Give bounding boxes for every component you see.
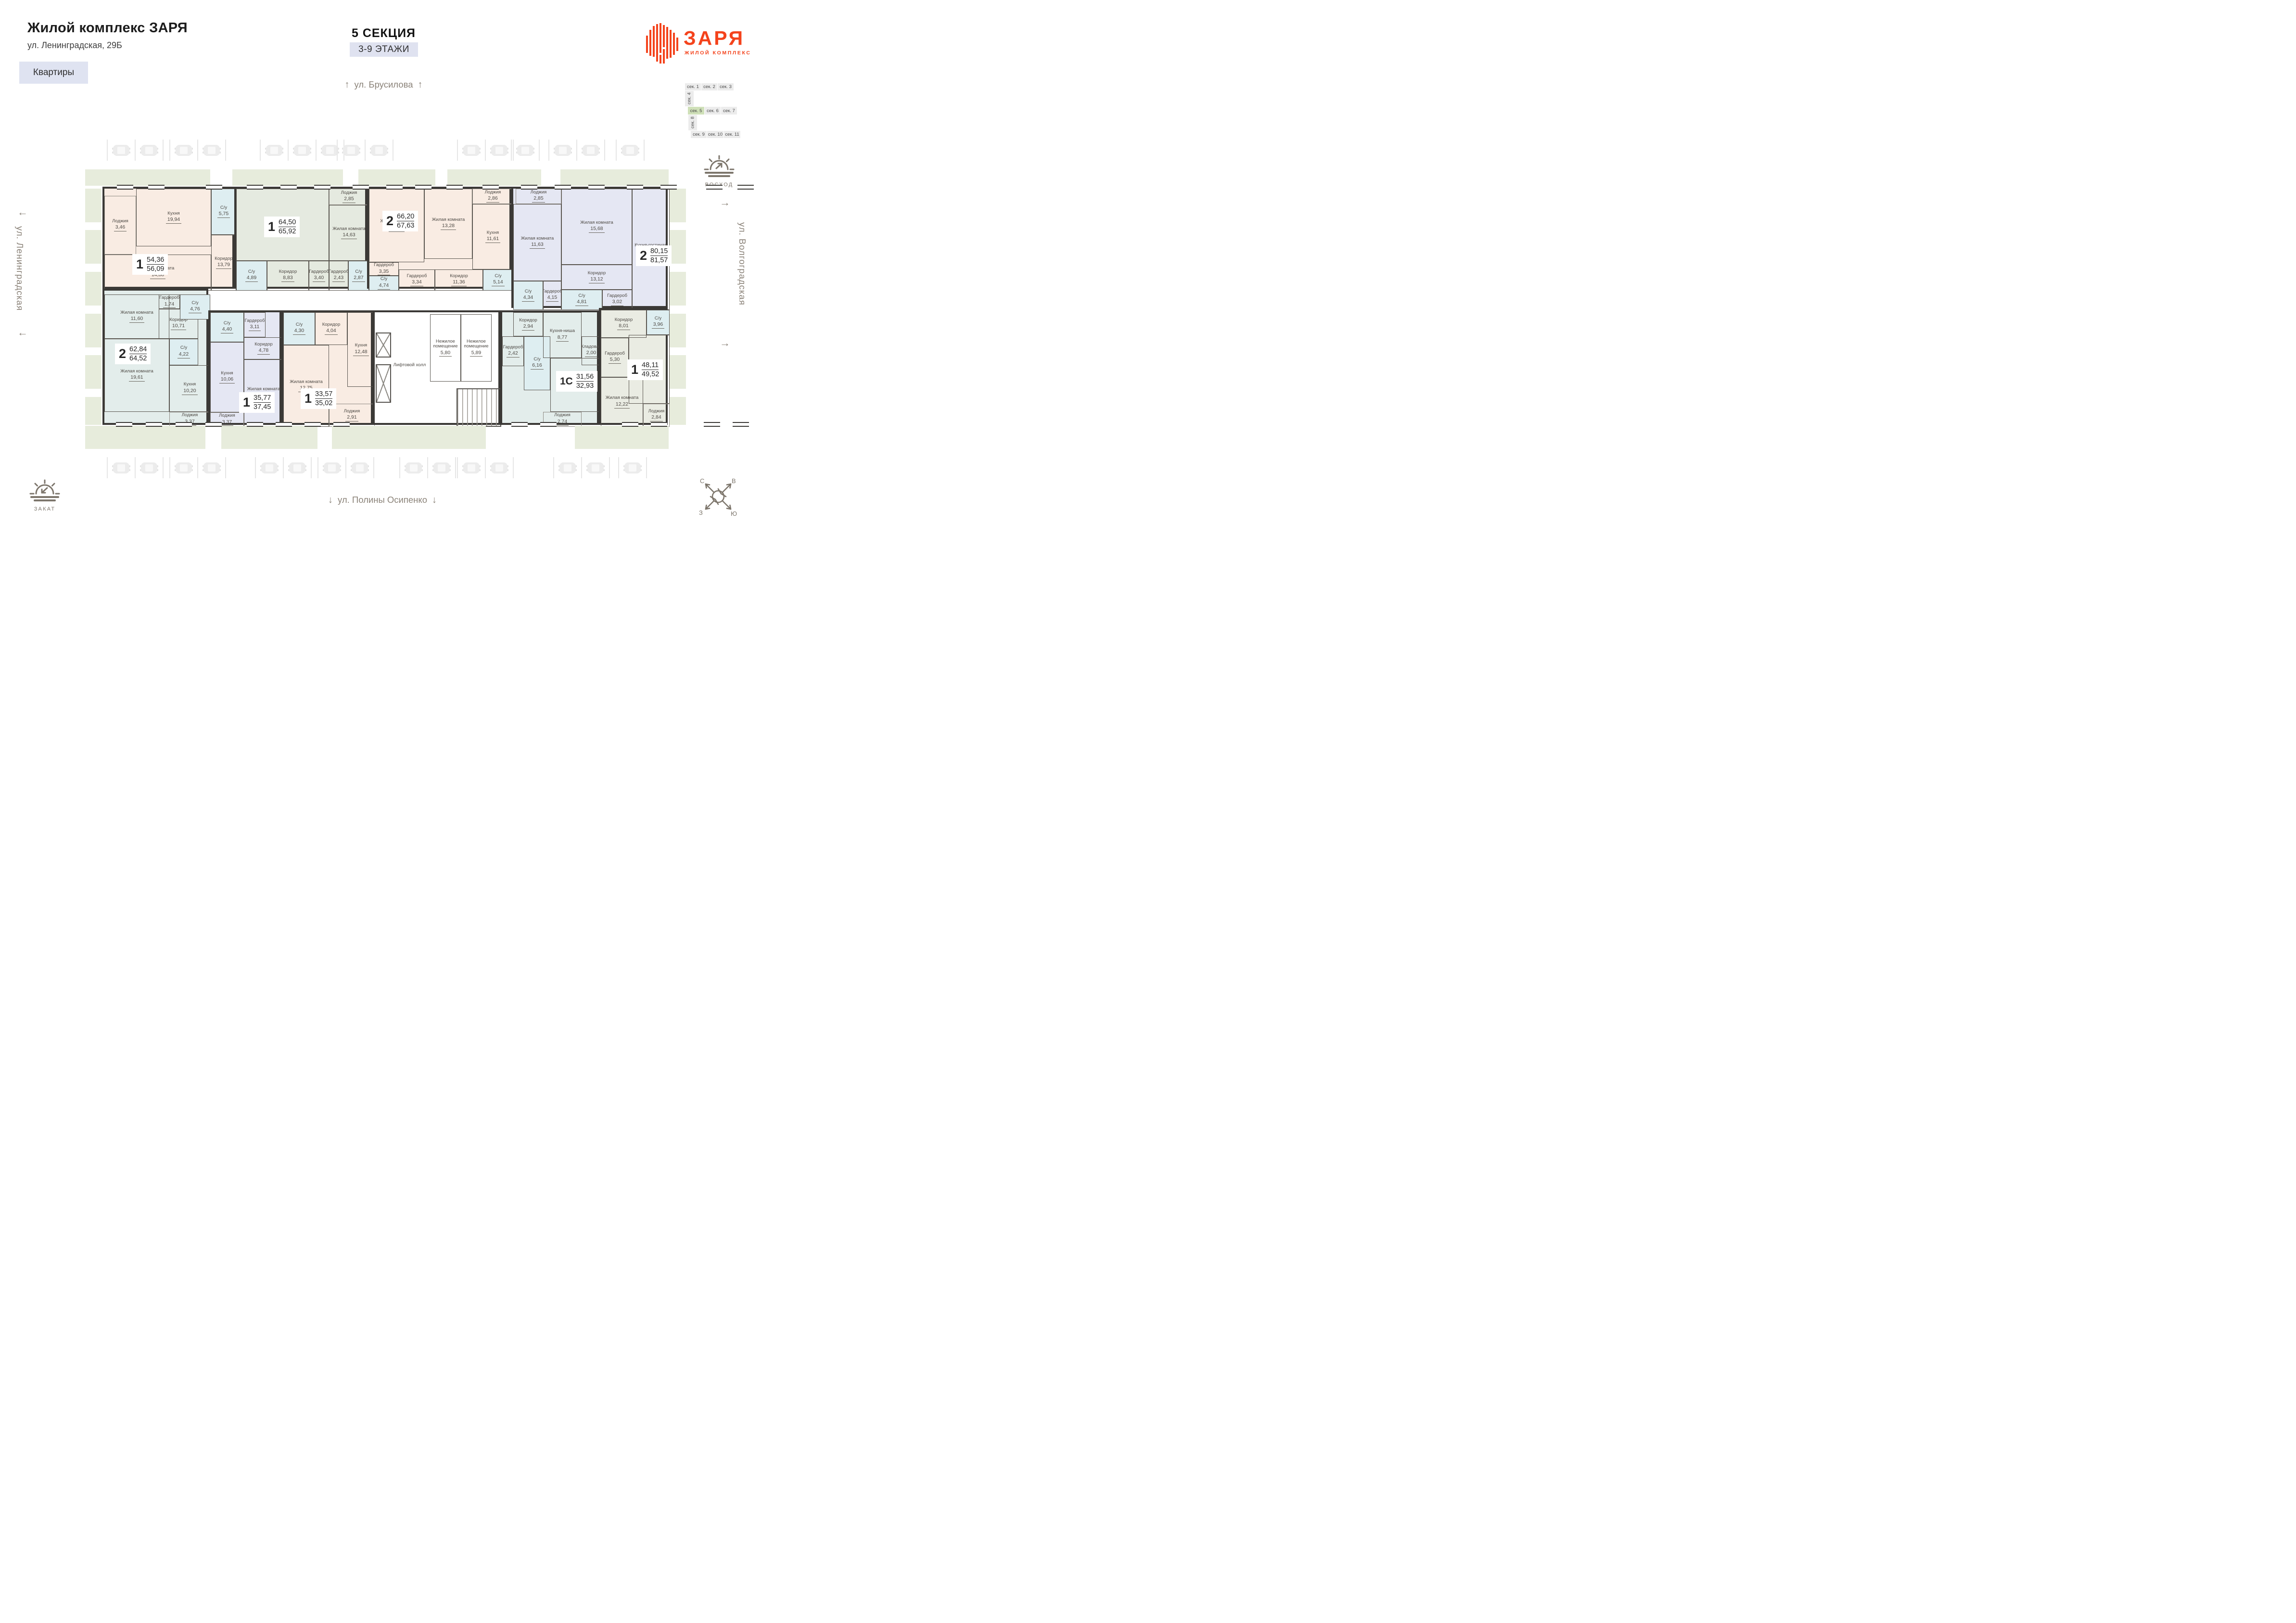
floors-badge: 3-9 ЭТАЖИ [350,42,418,57]
apartments-button[interactable]: Квартиры [19,62,88,84]
room-лоджия: Лоджия2,85 [329,189,369,205]
apartment-a6620[interactable]: Жилая комната13,44Жилая комната13,28Лодж… [367,187,511,289]
room-нежилое-помещение: Нежилое помещение5,89 [461,314,492,382]
room-area: 8,01 [617,323,630,330]
window [116,422,132,427]
room-жилая-комната: Жилая комната13,28 [424,189,472,259]
room-label: С/у [525,289,532,294]
apartment-type: 1С [560,376,573,386]
room-жилая-комната: Жилая комната14,63 [329,205,369,261]
landscaping [670,397,686,425]
car-icon [197,140,226,161]
room-area: 4,78 [257,347,270,355]
car-icon [581,457,610,478]
room-area: 11,61 [485,236,501,243]
room-label: Жилая комната [580,220,613,226]
car-icon [616,140,645,161]
window [333,422,350,427]
window [588,185,605,190]
sunset-label: ЗАКАТ [23,506,66,512]
window [511,422,528,427]
window [146,422,162,427]
apartment-a6284[interactable]: Жилая комната11,60Гардероб1,74Коридор10,… [102,289,208,425]
room-коридор: Коридор2,94 [513,312,543,336]
room-label: Коридор [254,342,273,347]
parking-stalls [399,457,456,478]
room-label: Коридор [215,256,233,262]
parking-stalls [618,457,647,478]
car-icon [399,457,427,478]
room-area: 2,42 [507,350,519,358]
car-icon [511,140,540,161]
room-лоджия: Лоджия3,46 [104,196,136,255]
apartment-a4811[interactable]: Коридор8,01С/у3,96Гардероб5,30Кухня18,63… [599,308,668,425]
apartment-tag: 280,1581,57 [636,245,672,266]
room-label: Гардероб [329,269,348,275]
parking-stalls [169,140,226,161]
logo-title: ЗАРЯ [684,27,745,50]
street-bottom: ↓ул. Полины Осипенко↓ [296,495,469,506]
room-area: 12,22 [614,401,630,409]
car-icon [260,140,288,161]
apartment-type: 1 [136,258,143,271]
window [415,185,431,190]
room-label: С/у [533,357,540,362]
landscaping [85,272,101,306]
landscaping [85,426,205,449]
street-top: ↑ул. Брусилова↑ [308,79,459,90]
window [314,185,330,190]
sunset-indicator: ЗАКАТ [23,479,66,512]
room-area: 2,84 [650,414,662,422]
room-label: Лоджия [554,413,571,418]
car-icon [618,457,647,478]
apartment-area-total: 65,92 [279,227,296,236]
room-label: Гардероб [309,269,329,275]
room-с-у: С/у4,81 [561,290,602,310]
room-area: 8,77 [556,334,569,342]
room-area: 2,94 [522,323,534,331]
room-area: 4,40 [221,326,233,333]
section-map-item-4[interactable]: сек. 4 [685,91,694,106]
section-map-item-6[interactable]: сек. 6 [705,107,721,115]
room-area: 3,46 [114,224,127,231]
room-area: 3,96 [652,321,664,329]
room-area: 2,43 [332,275,345,282]
room-label: С/у [248,269,255,275]
room-label: Гардероб [374,263,394,268]
room-label: С/у [191,301,198,306]
landscaping [670,189,686,222]
page-title: Жилой комплекс ЗАРЯ [27,20,188,36]
room-label: Лоджия [341,191,357,196]
arrow-left-icon: ← [17,206,28,218]
car-icon [283,457,312,478]
room-area: 2,74 [556,419,569,426]
room-area: 8,83 [281,275,294,282]
parking-stalls [260,140,344,161]
room-area: 3,40 [313,275,325,282]
room-гардероб: Гардероб3,40 [309,261,329,291]
landscaping [85,230,101,264]
window [446,185,463,190]
room-с-у: С/у4,89 [236,261,267,291]
room-label: Лоджия [531,190,547,195]
room-area: 4,15 [546,294,558,302]
landscaping [670,230,686,264]
section-map-item-8[interactable]: сек. 8 [688,115,697,130]
landscaping [332,426,486,449]
car-icon [255,457,283,478]
compass-icon: С В З Ю [697,475,739,518]
room-label: Гардероб [407,274,427,279]
arrow-right-icon: → [720,196,730,209]
apartment-tag: 148,1149,52 [627,359,663,380]
compass: С В З Ю [697,475,739,520]
apartment-area: 33,57 [315,390,332,399]
apartment-area: 64,50 [279,218,296,227]
room-area: 15,68 [589,226,604,233]
apartment-a6450[interactable]: Кухня-гостиная27,45С/у4,89Коридор8,83Гар… [234,187,367,289]
apartment-a8015[interactable]: Лоджия2,85Жилая комната11,63Жилая комнат… [511,187,668,308]
landscaping [85,314,101,347]
window [706,185,723,190]
apartment-area-total: 56,09 [147,265,164,273]
car-icon [365,140,393,161]
room-label: Лоджия [648,409,665,414]
window [247,185,263,190]
room-label: Жилая комната [290,380,323,385]
room-area: 19,94 [166,217,181,224]
room-гардероб: Гардероб4,15 [543,281,561,310]
room-area: 6,16 [531,362,543,370]
room-area: 5,75 [217,211,230,218]
room-с-у: С/у4,74 [369,276,399,291]
landscaping [85,397,101,425]
landscaping [85,169,210,186]
section-map-item-1[interactable]: сек. 1 [685,83,701,90]
car-icon [345,457,374,478]
car-icon [427,457,456,478]
room-коридор: Коридор11,36 [435,269,483,291]
section-map-item-3[interactable]: сек. 3 [718,83,734,90]
room-area: 3,37 [221,419,233,426]
room-label: Жилая комната [606,396,639,401]
parking-stalls [548,140,605,161]
landscaping [670,355,686,389]
room-с-у: С/у2,87 [348,261,369,291]
window [482,185,499,190]
apartment-tag: 133,5735,02 [301,388,336,409]
parking-stalls [107,140,164,161]
room-коридор: Коридор4,78 [244,337,283,359]
room-area: 4,34 [522,294,534,302]
window [555,185,571,190]
room-label: Нежилое помещение [431,339,460,349]
landscaping [447,169,541,186]
room-area: 13,28 [441,223,456,230]
page: Жилой комплекс ЗАРЯ ул. Ленинградская, 2… [0,0,765,541]
section-map-item-7[interactable]: сек. 7 [721,107,737,115]
parking-stalls [169,457,226,478]
room-нежилое-помещение: Нежилое помещение5,80 [430,314,461,382]
parking-stalls [553,457,610,478]
sunrise-indicator: ВОСХОД [698,155,741,188]
room-label: Коридор [279,269,297,275]
room-area: 2,00 [585,350,597,357]
room-кухня: Кухня12,48 [347,312,375,387]
window [304,422,321,427]
room-area: 5,89 [470,350,482,357]
room-с-у: С/у5,14 [483,269,513,291]
room-label: Лоджия [219,413,235,419]
room-гардероб: Гардероб3,34 [399,269,435,291]
room-area: 19,61 [129,374,144,382]
room-area: 5,14 [492,279,504,286]
room-area: 2,91 [345,414,358,422]
room-area: 4,74 [378,282,390,290]
window [540,422,557,427]
room-лоджия: Лоджия2,85 [516,189,561,204]
apartment-type: 2 [386,215,393,228]
apartment-area: 80,15 [650,247,668,256]
room-label: Кухня [221,371,233,376]
room-label: Жилая комната [521,236,554,242]
section-map-item-10[interactable]: сек. 10 [707,131,723,138]
apartment-type: 1 [304,392,312,405]
landscaping [670,314,686,347]
room-лоджия: Лоджия2,86 [472,189,513,204]
window [704,422,720,427]
room-label: Кухня [355,343,367,348]
apartment-a3357[interactable]: С/у4,30Коридор4,04Кухня12,48Жилая комнат… [281,310,373,425]
room-label: Кухня [487,230,499,236]
window [622,422,638,427]
room-area: 4,76 [189,306,201,313]
parking-stalls [337,140,393,161]
room-area: 3,02 [611,299,623,306]
compass-north: С [700,477,704,485]
room-area: 3,11 [249,324,261,331]
room-кухня: Кухня10,20 [169,365,210,412]
room-label: Кухня [184,382,196,387]
window [276,422,292,427]
window [205,422,222,427]
room-label: Гардероб [543,289,561,294]
compass-east: В [732,477,736,485]
car-icon [485,457,514,478]
room-label: Лоджия [112,219,128,224]
room-label: Коридор [322,322,341,328]
arrow-up-icon: ↑ [340,79,355,90]
car-icon [288,140,316,161]
apartment-a3577[interactable]: С/у4,40Гардероб3,11Коридор4,78Кухня10,06… [208,310,281,425]
room-гардероб: Гардероб2,42 [502,336,524,366]
window [148,185,165,190]
room-с-у: С/у5,75 [211,189,236,235]
parking-stalls [255,457,312,478]
landscaping [85,189,101,222]
room-кухня: Кухня19,94 [136,189,211,246]
room-коридор: Коридор8,01 [601,310,647,338]
window [280,185,297,190]
section-title: 5 СЕКЦИЯ [332,26,435,40]
sunrise-icon [703,155,735,178]
room-label: Кухня-ниша [550,329,575,334]
window [660,185,677,190]
room-label: С/у [355,269,362,275]
room-area: 10,71 [171,323,186,330]
room-area: 1,74 [163,301,176,308]
room-label: Жилая комната [120,369,153,374]
room-label: Гардероб [159,295,179,301]
room-лифтовой-холл: Лифтовой холл [387,353,432,377]
room-label: Лифтовой холл [393,363,426,368]
window [247,422,263,427]
room-area: 2,85 [342,196,355,203]
room-label: С/у [220,205,227,211]
room-label: С/у [495,274,501,279]
section-map-item-9[interactable]: сек. 9 [691,131,707,138]
room-area: 14,63 [341,232,356,239]
apartment-type: 1 [243,396,250,409]
room-с-у: С/у4,34 [513,281,543,310]
logo-subtitle: ЖИЛОЙ КОМПЛЕКС [685,50,751,56]
parking-stalls [616,140,645,161]
room-с-у: С/у4,40 [210,312,244,342]
stairs [457,388,501,427]
room-area: 11,63 [530,242,545,249]
apartment-area-total: 64,52 [129,354,147,363]
landscaping [221,426,317,449]
room-с-у: С/у4,22 [169,339,198,365]
apartment-a1c[interactable]: Коридор2,94Гардероб2,42С/у6,16Кухня-ниша… [500,310,599,425]
logo-icon [645,23,680,68]
parking-stalls [457,457,514,478]
room-с-у: С/у4,30 [283,312,315,345]
apartment-core: Лифтовой холлНежилое помещение5,80Нежило… [373,310,500,425]
arrow-up-icon: ↑ [413,79,427,90]
car-icon [485,140,514,161]
car-icon [317,457,345,478]
apartment-area: 62,84 [129,345,147,354]
car-icon [197,457,226,478]
room-гардероб: Гардероб3,35 [369,262,399,276]
room-area: 11,36 [451,279,467,286]
car-icon [576,140,605,161]
room-area: 10,20 [182,388,197,395]
apartment-tag: 266,2067,63 [382,211,418,231]
landscaping [560,169,669,186]
apartment-area: 54,36 [147,256,164,265]
apartment-area: 66,20 [397,212,414,221]
room-area: 4,04 [325,328,337,335]
room-жилая-комната: Жилая комната11,63 [513,204,561,281]
apartment-type: 1 [268,220,275,233]
apartment-area: 35,77 [254,394,271,403]
apartment-type: 2 [640,249,647,262]
window [627,185,643,190]
room-label: Жилая комната [432,217,465,223]
room-жилая-комната: Жилая комната15,68 [561,189,632,265]
apartment-area-total: 32,93 [576,382,594,390]
room-label: Кухня [167,211,179,217]
room-label: Жилая комната [120,310,153,316]
parking-stalls [457,140,514,161]
room-label: Лоджия [182,413,198,418]
room-area: 10,06 [219,376,235,383]
car-icon [107,457,135,478]
car-icon [169,140,197,161]
room-label: С/у [655,316,661,321]
room-area: 13,12 [589,276,604,283]
room-label: Коридор [588,271,606,276]
room-label: Лоджия [485,190,501,195]
room-гардероб: Гардероб2,43 [329,261,348,291]
room-area: 13,79 [216,262,231,269]
car-icon [107,140,135,161]
room-label: С/у [381,277,387,282]
window [737,185,754,190]
room-label: Коридор [615,318,633,323]
room-коридор: Коридор8,83 [267,261,309,291]
room-гардероб: Гардероб1,74 [159,294,180,309]
section-map-item-5[interactable]: сек. 5 [688,107,704,115]
window [353,185,369,190]
section-map: сек. 1сек. 2сек. 3сек. 4сек. 5сек. 6сек.… [683,81,743,140]
sunset-icon [29,479,61,502]
room-label: Гардероб [605,351,625,357]
apartment-area-total: 49,52 [642,370,659,379]
section-map-item-2[interactable]: сек. 2 [701,83,717,90]
room-label: Кладовая [582,345,601,350]
apartment-tag: 154,3656,09 [132,254,168,275]
page-address: ул. Ленинградская, 29Б [27,40,122,51]
room-label: Гардероб [607,294,627,299]
room-гардероб: Гардероб3,11 [244,312,266,337]
apartment-a5436[interactable]: Лоджия3,46Кухня19,94С/у5,75Жилая комната… [102,187,234,289]
room-label: С/у [224,321,230,326]
room-гардероб: Гардероб5,30 [601,338,629,377]
apartment-tag: 164,5065,92 [264,217,300,237]
arrow-left-icon: ← [17,326,28,339]
compass-west: З [699,509,703,516]
apartment-type: 1 [631,363,638,376]
room-label: С/у [180,345,187,351]
street-top-label: ул. Брусилова [355,79,413,89]
arrow-down-icon: ↓ [427,495,442,505]
landscaping [670,272,686,306]
room-label: Гардероб [245,319,265,324]
apartment-tag: 1С31,5632,93 [556,371,597,392]
window [733,422,749,427]
window [521,185,537,190]
car-icon [169,457,197,478]
room-кухня-ниша: Кухня-ниша8,77 [543,312,582,358]
car-icon [553,457,581,478]
arrow-down-icon: ↓ [323,495,338,505]
section-map-item-11[interactable]: сек. 11 [724,131,740,138]
room-кухня: Кухня11,61 [472,204,513,269]
apartment-type: 2 [119,347,126,360]
apartment-area-total: 37,45 [254,403,271,411]
apartment-area-total: 67,63 [397,221,414,230]
elevator-shaft [376,364,391,403]
apartment-tag: 262,8464,52 [115,344,151,364]
car-icon [337,140,365,161]
street-right: ул. Волгоградская [737,222,748,306]
parking-stalls [107,457,164,478]
